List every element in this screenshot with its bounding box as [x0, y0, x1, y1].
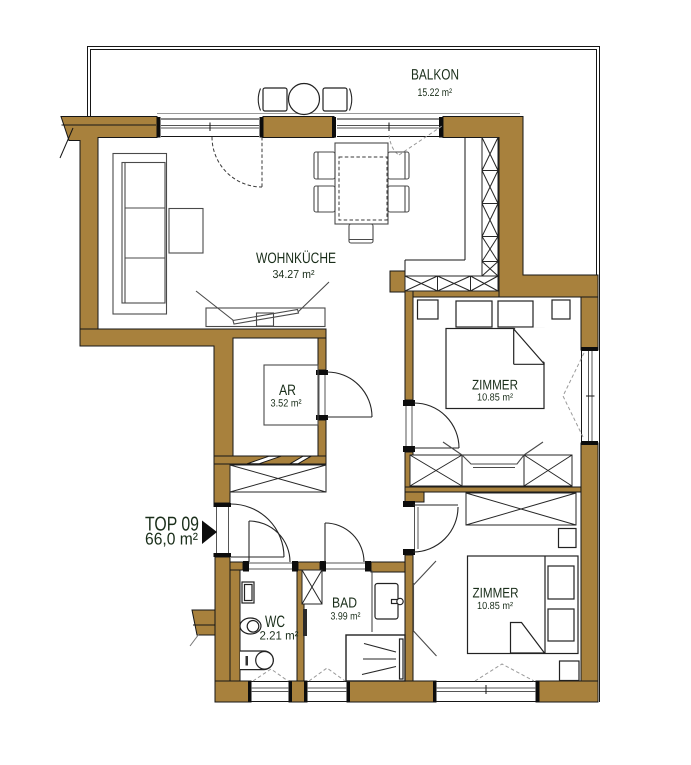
svg-text:66,0 m²: 66,0 m²: [145, 530, 198, 549]
svg-text:WOHNKÜCHE: WOHNKÜCHE: [256, 250, 336, 267]
svg-text:AR: AR: [279, 382, 296, 399]
svg-text:2.21 m²: 2.21 m²: [260, 629, 299, 643]
svg-text:10.85 m²: 10.85 m²: [477, 393, 514, 404]
svg-text:3.99 m²: 3.99 m²: [331, 611, 361, 623]
svg-text:10.85 m²: 10.85 m²: [477, 601, 514, 612]
svg-text:BALKON: BALKON: [411, 67, 459, 84]
svg-text:15.22 m²: 15.22 m²: [418, 87, 453, 99]
svg-text:ZIMMER: ZIMMER: [472, 377, 518, 393]
svg-text:34.27 m²: 34.27 m²: [273, 269, 315, 281]
svg-text:BAD: BAD: [332, 596, 357, 612]
svg-text:ZIMMER: ZIMMER: [473, 585, 519, 601]
svg-text:3.52 m²: 3.52 m²: [271, 398, 302, 410]
